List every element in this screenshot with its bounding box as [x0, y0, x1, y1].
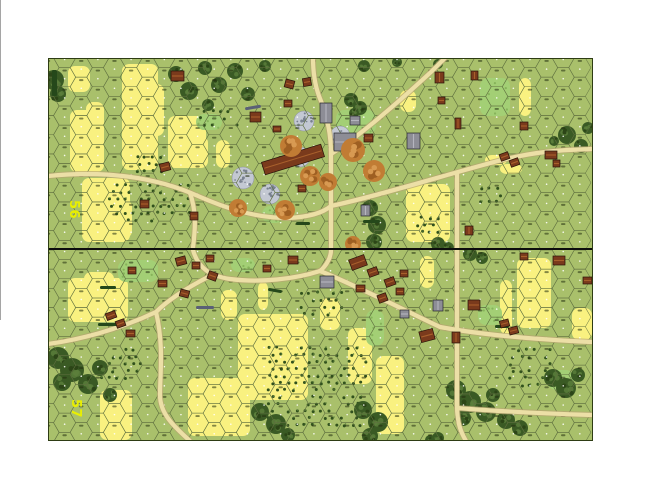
hex-coordinate-label [395, 434, 399, 436]
hex-coordinate-label [495, 396, 499, 398]
hex-coordinate-label [528, 281, 532, 283]
hex-coordinate-label [262, 300, 266, 302]
wooden-building [192, 262, 200, 269]
hex-coordinate-label [162, 262, 166, 264]
hex-coordinate-label [212, 214, 216, 216]
hex-coordinate-label [445, 406, 449, 408]
hex-coordinate-label [245, 79, 249, 81]
hex-coordinate-label [146, 194, 150, 196]
hex-coordinate-label [62, 242, 66, 244]
wooden-building [126, 330, 135, 337]
hex-coordinate-label [245, 118, 249, 120]
hex-coordinate-label [179, 386, 183, 388]
hex-coordinate-label [528, 204, 532, 206]
hex-coordinate-label [461, 281, 465, 283]
hex-coordinate-label [561, 89, 565, 91]
hex-coordinate-label [428, 185, 432, 187]
hex-coordinate-label [146, 252, 150, 254]
hex-coordinate-label [179, 175, 183, 177]
hex-coordinate-label [245, 137, 249, 139]
hex-coordinate-label [112, 98, 116, 100]
hex-coordinate-label [162, 127, 166, 129]
hex-coordinate-label [262, 108, 266, 110]
hex-coordinate-label [62, 185, 66, 187]
wooden-building [435, 72, 444, 83]
board-number-label: 56 [66, 200, 81, 219]
hex-coordinate-label [395, 242, 399, 244]
hex-coordinate-label [96, 204, 100, 206]
hex-coordinate-label [445, 252, 449, 254]
hex-coordinate-label [328, 396, 332, 398]
hex-coordinate-label [312, 233, 316, 235]
hex-coordinate-label [362, 108, 366, 110]
hex-coordinate-label [96, 358, 100, 360]
hex-coordinate-label [62, 166, 66, 168]
hex-coordinate-label [478, 214, 482, 216]
hex-coordinate-label [129, 70, 133, 72]
hex-coordinate-label [578, 156, 582, 158]
hex-coordinate-label [561, 319, 565, 321]
hex-coordinate-label [411, 290, 415, 292]
hedge [296, 222, 310, 225]
hex-coordinate-label [561, 166, 565, 168]
wooden-building [400, 270, 408, 277]
hex-coordinate-label [212, 156, 216, 158]
stone-building [361, 205, 370, 216]
hex-coordinate-label [461, 127, 465, 129]
hex-coordinate-label [345, 118, 349, 120]
hex-coordinate-label [478, 137, 482, 139]
hex-coordinate-label [461, 146, 465, 148]
hex-coordinate-label [411, 214, 415, 216]
hex-coordinate-label [212, 175, 216, 177]
hex-coordinate-label [528, 70, 532, 72]
board-56: 56 [48, 58, 593, 259]
hex-coordinate-label [229, 338, 233, 340]
hex-coordinate-label [445, 310, 449, 312]
wooden-building [364, 134, 373, 142]
hex-coordinate-label [62, 281, 66, 283]
hex-coordinate-label [362, 434, 366, 436]
hex-coordinate-label [478, 290, 482, 292]
hex-coordinate-label [395, 127, 399, 129]
hex-coordinate-label [146, 156, 150, 158]
hex-coordinate-label [495, 242, 499, 244]
hex-coordinate-label [245, 194, 249, 196]
wooden-building [171, 71, 184, 81]
hex-coordinate-label [212, 425, 216, 427]
hex-coordinate-label [445, 348, 449, 350]
hex-coordinate-label [278, 252, 282, 254]
hex-coordinate-label [578, 310, 582, 312]
hex-coordinate-label [461, 70, 465, 72]
hex-coordinate-label [96, 127, 100, 129]
hex-coordinate-label [278, 406, 282, 408]
hex-coordinate-label [146, 60, 150, 62]
hex-coordinate-label [129, 434, 133, 436]
hex-coordinate-label [262, 127, 266, 129]
hex-coordinate-label [312, 367, 316, 369]
hex-coordinate-label [445, 233, 449, 235]
hex-coordinate-label [345, 271, 349, 273]
asl-map-boards[interactable]: 5657 [48, 58, 593, 441]
hex-coordinate-label [395, 396, 399, 398]
hex-coordinate-label [245, 290, 249, 292]
hex-coordinate-label [561, 242, 565, 244]
hex-coordinate-label [312, 194, 316, 196]
hex-coordinate-label [79, 79, 83, 81]
hex-coordinate-label [362, 300, 366, 302]
hex-coordinate-label [195, 319, 199, 321]
hex-coordinate-label [129, 396, 133, 398]
hex-coordinate-label [96, 396, 100, 398]
hex-coordinate-label [162, 70, 166, 72]
wooden-building [520, 253, 528, 260]
hex-coordinate-label [544, 60, 548, 62]
hex-coordinate-label [411, 194, 415, 196]
hex-coordinate-label [378, 137, 382, 139]
hex-coordinate-label [511, 290, 515, 292]
hex-coordinate-label [278, 194, 282, 196]
hex-coordinate-label [345, 175, 349, 177]
hex-coordinate-label [278, 175, 282, 177]
hex-coordinate-label [411, 329, 415, 331]
hex-coordinate-label [511, 137, 515, 139]
hex-coordinate-label [179, 60, 183, 62]
hex-coordinate-label [278, 271, 282, 273]
hex-coordinate-label [62, 319, 66, 321]
hex-coordinate-label [561, 396, 565, 398]
hex-coordinate-label [428, 415, 432, 417]
hex-coordinate-label [112, 156, 116, 158]
hex-coordinate-label [312, 329, 316, 331]
hex-coordinate-label [544, 175, 548, 177]
hex-coordinate-label [129, 281, 133, 283]
hex-coordinate-label [295, 166, 299, 168]
hex-coordinate-label [79, 233, 83, 235]
hex-coordinate-label [229, 89, 233, 91]
hex-coordinate-label [312, 348, 316, 350]
hex-coordinate-label [112, 214, 116, 216]
hex-coordinate-label [378, 386, 382, 388]
hex-coordinate-label [312, 118, 316, 120]
hex-coordinate-label [245, 175, 249, 177]
hex-coordinate-label [345, 425, 349, 427]
hex-coordinate-label [445, 290, 449, 292]
hex-coordinate-label [295, 70, 299, 72]
board-number-label: 57 [68, 399, 83, 418]
hex-coordinate-label [495, 281, 499, 283]
hex-coordinate-label [146, 79, 150, 81]
hex-coordinate-label [146, 406, 150, 408]
hex-coordinate-label [345, 348, 349, 350]
hex-coordinate-label [179, 425, 183, 427]
hex-coordinate-label [278, 60, 282, 62]
hex-coordinate-label [295, 358, 299, 360]
hex-coordinate-label [495, 185, 499, 187]
wooden-building [468, 300, 480, 310]
hex-coordinate-label [445, 271, 449, 273]
hex-coordinate-label [146, 118, 150, 120]
hex-coordinate-label [345, 386, 349, 388]
wooden-building [356, 285, 365, 292]
wooden-building [190, 212, 198, 220]
hex-coordinate-label [295, 396, 299, 398]
hex-coordinate-label [295, 377, 299, 379]
hex-coordinate-label [262, 89, 266, 91]
hex-coordinate-label [511, 310, 515, 312]
hex-coordinate-label [528, 242, 532, 244]
hex-coordinate-label [578, 98, 582, 100]
hex-coordinate-label [378, 425, 382, 427]
hex-coordinate-label [146, 137, 150, 139]
hex-coordinate-label [378, 406, 382, 408]
hex-coordinate-label [62, 358, 66, 360]
hex-coordinate-label [428, 108, 432, 110]
hex-coordinate-label [245, 271, 249, 273]
hex-coordinate-label [112, 252, 116, 254]
hex-coordinate-label [278, 118, 282, 120]
hex-coordinate-label [495, 204, 499, 206]
wooden-building [284, 100, 292, 107]
hex-coordinate-label [129, 377, 133, 379]
hex-coordinate-label [295, 204, 299, 206]
hex-coordinate-label [212, 310, 216, 312]
hex-coordinate-label [179, 156, 183, 158]
hex-coordinate-label [461, 338, 465, 340]
hex-coordinate-label [179, 118, 183, 120]
hex-coordinate-label [79, 386, 83, 388]
hex-coordinate-label [411, 79, 415, 81]
hex-coordinate-label [212, 233, 216, 235]
hex-coordinate-label [245, 233, 249, 235]
hex-coordinate-label [212, 79, 216, 81]
hex-coordinate-label [179, 233, 183, 235]
wooden-building [158, 280, 167, 287]
hex-coordinate-label [544, 425, 548, 427]
hex-coordinate-label [62, 127, 66, 129]
hex-coordinate-label [295, 434, 299, 436]
fall-trees [280, 135, 302, 157]
hex-coordinate-label [212, 406, 216, 408]
hex-coordinate-label [62, 108, 66, 110]
hex-coordinate-label [511, 194, 515, 196]
fall-trees [229, 199, 247, 217]
grain-field [519, 78, 531, 116]
hex-coordinate-label [328, 377, 332, 379]
hex-coordinate-label [112, 194, 116, 196]
hex-coordinate-label [295, 300, 299, 302]
hex-coordinate-label [245, 367, 249, 369]
hex-coordinate-label [528, 377, 532, 379]
hex-coordinate-label [445, 79, 449, 81]
hex-coordinate-label [511, 425, 515, 427]
hex-coordinate-label [112, 406, 116, 408]
hex-coordinate-label [345, 60, 349, 62]
hex-coordinate-label [278, 137, 282, 139]
hex-coordinate-label [544, 118, 548, 120]
hex-coordinate-label [345, 214, 349, 216]
hex-coordinate-label [312, 137, 316, 139]
hex-coordinate-label [129, 89, 133, 91]
hex-coordinate-label [345, 290, 349, 292]
wooden-building [553, 160, 560, 167]
hex-coordinate-label [278, 98, 282, 100]
hex-coordinate-label [146, 98, 150, 100]
hex-coordinate-label [495, 434, 499, 436]
hex-coordinate-label [62, 146, 66, 148]
grain-field [86, 102, 104, 138]
hex-coordinate-label [179, 194, 183, 196]
hex-coordinate-label [578, 118, 582, 120]
hex-coordinate-label [229, 262, 233, 264]
hex-coordinate-label [212, 367, 216, 369]
stone-building [400, 310, 409, 318]
hex-coordinate-label [461, 300, 465, 302]
hex-coordinate-label [162, 89, 166, 91]
hex-coordinate-label [428, 358, 432, 360]
hex-coordinate-label [362, 70, 366, 72]
hex-coordinate-label [528, 146, 532, 148]
capture-edge-artifact [0, 0, 1, 320]
hex-coordinate-label [262, 242, 266, 244]
hex-coordinate-label [146, 310, 150, 312]
hex-coordinate-label [146, 271, 150, 273]
hex-coordinate-label [561, 434, 565, 436]
hex-coordinate-label [162, 319, 166, 321]
hex-coordinate-label [428, 127, 432, 129]
hex-coordinate-label [345, 233, 349, 235]
stone-building [320, 103, 332, 123]
hex-coordinate-label [544, 386, 548, 388]
hex-coordinate-label [428, 242, 432, 244]
hex-coordinate-label [478, 367, 482, 369]
hex-coordinate-label [544, 271, 548, 273]
hex-coordinate-label [495, 415, 499, 417]
hex-coordinate-label [295, 415, 299, 417]
hex-coordinate-label [495, 146, 499, 148]
hex-coordinate-label [212, 386, 216, 388]
hex-coordinate-label [312, 290, 316, 292]
hex-coordinate-label [295, 319, 299, 321]
hex-coordinate-label [112, 118, 116, 120]
hex-coordinate-label [511, 348, 515, 350]
hex-coordinate-label [229, 242, 233, 244]
hex-coordinate-label [295, 242, 299, 244]
hex-coordinate-label [428, 281, 432, 283]
map-svg[interactable]: 5657 [48, 58, 593, 441]
hex-coordinate-label [212, 98, 216, 100]
hex-coordinate-label [278, 329, 282, 331]
hex-coordinate-label [578, 367, 582, 369]
hex-coordinate-label [79, 252, 83, 254]
hex-coordinate-label [445, 386, 449, 388]
hex-coordinate-label [378, 329, 382, 331]
hex-coordinate-label [245, 310, 249, 312]
hex-coordinate-label [96, 338, 100, 340]
hex-coordinate-label [129, 108, 133, 110]
hex-coordinate-label [162, 204, 166, 206]
hex-coordinate-label [428, 204, 432, 206]
hex-coordinate-label [229, 434, 233, 436]
hex-coordinate-label [461, 204, 465, 206]
hedge [100, 286, 116, 289]
hex-coordinate-label [129, 166, 133, 168]
hex-coordinate-label [129, 185, 133, 187]
fall-trees [341, 138, 365, 162]
hex-coordinate-label [495, 377, 499, 379]
wall [196, 306, 214, 309]
hex-coordinate-label [146, 329, 150, 331]
hex-coordinate-label [245, 329, 249, 331]
hex-coordinate-label [112, 367, 116, 369]
hex-coordinate-label [378, 214, 382, 216]
hex-coordinate-label [112, 60, 116, 62]
fall-trees [363, 160, 385, 182]
hex-coordinate-label [428, 377, 432, 379]
hex-coordinate-label [478, 194, 482, 196]
grain-field [517, 258, 551, 328]
hex-coordinate-label [362, 185, 366, 187]
hex-coordinate-label [146, 425, 150, 427]
hex-coordinate-label [411, 386, 415, 388]
grain-field [146, 84, 164, 136]
hex-coordinate-label [79, 425, 83, 427]
hex-coordinate-label [544, 367, 548, 369]
hex-coordinate-label [195, 396, 199, 398]
hex-coordinate-label [195, 89, 199, 91]
hex-coordinate-label [495, 300, 499, 302]
wooden-building [583, 277, 592, 284]
hex-coordinate-label [561, 281, 565, 283]
hex-coordinate-label [362, 377, 366, 379]
hex-coordinate-label [328, 434, 332, 436]
hex-coordinate-label [395, 300, 399, 302]
hex-coordinate-label [378, 79, 382, 81]
hex-coordinate-label [362, 89, 366, 91]
hex-coordinate-label [445, 118, 449, 120]
hex-coordinate-label [112, 425, 116, 427]
hex-coordinate-label [262, 358, 266, 360]
hex-coordinate-label [129, 338, 133, 340]
fall-trees [275, 200, 295, 220]
hex-coordinate-label [362, 396, 366, 398]
hex-coordinate-label [262, 262, 266, 264]
hex-coordinate-label [578, 290, 582, 292]
hex-coordinate-label [528, 127, 532, 129]
wooden-building [206, 255, 214, 262]
hex-coordinate-label [146, 367, 150, 369]
hex-coordinate-label [395, 338, 399, 340]
hex-coordinate-label [395, 223, 399, 225]
hex-coordinate-label [461, 108, 465, 110]
hex-coordinate-label [495, 89, 499, 91]
hex-coordinate-label [578, 252, 582, 254]
hex-coordinate-label [229, 223, 233, 225]
hex-coordinate-label [578, 406, 582, 408]
hex-coordinate-label [378, 290, 382, 292]
hex-coordinate-label [195, 415, 199, 417]
stone-building [433, 300, 443, 311]
hex-coordinate-label [511, 60, 515, 62]
hex-coordinate-label [295, 89, 299, 91]
rubble-hex [232, 167, 254, 189]
hex-coordinate-label [96, 242, 100, 244]
hex-coordinate-label [195, 377, 199, 379]
hex-coordinate-label [461, 319, 465, 321]
hex-coordinate-label [478, 425, 482, 427]
hex-coordinate-label [411, 175, 415, 177]
